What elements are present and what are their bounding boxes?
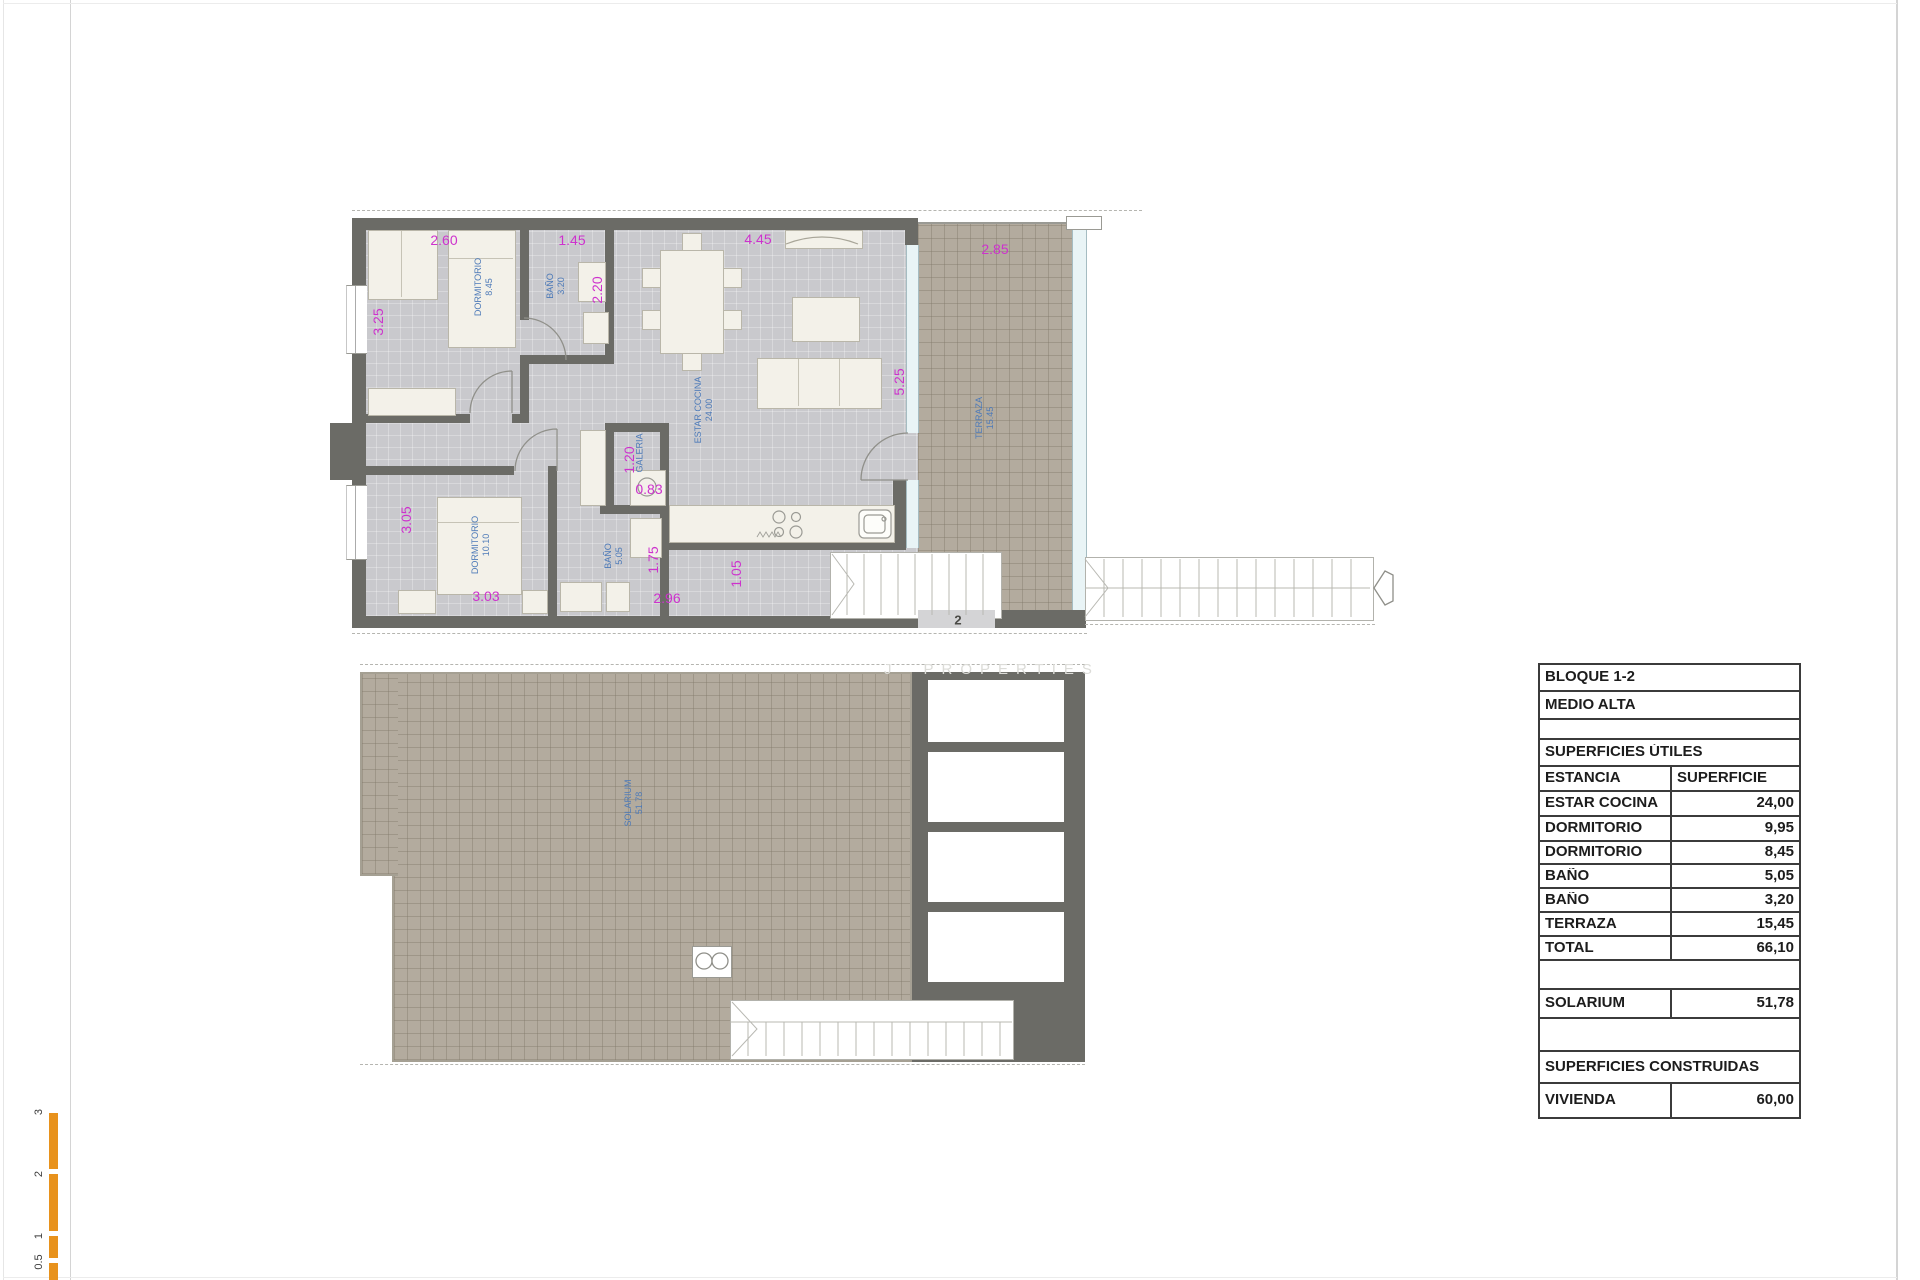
chair	[723, 310, 742, 330]
nightstand	[398, 590, 436, 614]
table-cell: DORMITORIO	[1540, 820, 1670, 837]
skylight	[692, 946, 732, 978]
table-row: SUPERFICIES CONSTRUIDAS	[1540, 1052, 1799, 1084]
scale-label: 0.5	[33, 1254, 45, 1269]
table-cell: 51,78	[1670, 990, 1799, 1017]
tv-cabinet	[785, 230, 863, 249]
table-cell: 9,95	[1670, 817, 1799, 840]
table-cell: 66,10	[1670, 937, 1799, 959]
toilet	[606, 582, 630, 612]
room-area: 5.05	[614, 547, 624, 565]
scale-bar-segment	[49, 1236, 58, 1258]
room-label: GALERIA	[635, 433, 646, 472]
table-row: SOLARIUM51,78	[1540, 990, 1799, 1019]
room-area: 3.20	[556, 277, 566, 295]
table-cell: BAÑO	[1540, 892, 1670, 909]
solarium-floor-extension	[360, 672, 398, 876]
window	[346, 485, 367, 560]
table-cell: ESTAR COCINA	[1540, 795, 1670, 812]
lightwell	[928, 752, 1064, 822]
toilet	[583, 312, 609, 344]
room-name: GALERIA	[635, 433, 645, 472]
table-cell: 15,45	[1670, 913, 1799, 935]
scale-label: 3	[33, 1109, 45, 1115]
terrace-pillar	[1066, 216, 1102, 230]
table-cell: SOLARIUM	[1540, 995, 1670, 1012]
scale-bar-segment	[49, 1174, 58, 1231]
hall-closet	[580, 430, 606, 506]
table-cell: BLOQUE 1-2	[1540, 669, 1799, 686]
page-border-top	[3, 3, 1897, 4]
table-row	[1540, 961, 1799, 990]
room-area: 10.10	[481, 534, 491, 557]
table-cell: TERRAZA	[1540, 916, 1670, 933]
table-row: BAÑO5,05	[1540, 865, 1799, 889]
wall	[520, 355, 614, 364]
lightwell	[928, 680, 1064, 742]
room-name: TERRAZA	[974, 397, 984, 439]
table-cell: 5,05	[1670, 865, 1799, 887]
table-cell: DORMITORIO	[1540, 844, 1670, 861]
room-name: BAÑO	[545, 273, 555, 299]
page-border-inner-left	[70, 0, 71, 1280]
dining-table	[660, 250, 724, 354]
table-cell: 24,00	[1670, 792, 1799, 815]
wall	[605, 423, 614, 514]
wall	[352, 218, 918, 230]
room-area: 24.00	[704, 399, 714, 422]
dimension-label: 3.05	[398, 506, 414, 533]
table-cell: TOTAL	[1540, 940, 1670, 957]
plan-bottom-dashes	[352, 633, 1087, 634]
room-area: 8.45	[484, 278, 494, 296]
dimension-label: 1.45	[558, 232, 585, 248]
dresser	[368, 388, 456, 416]
dimension-label: 1.05	[728, 560, 744, 587]
page-border-left	[3, 0, 4, 1280]
table-row: TERRAZA15,45	[1540, 913, 1799, 937]
table-cell: SUPERFICIES ÚTILES	[1540, 744, 1799, 761]
kitchen-counter	[669, 505, 895, 543]
dimension-label: 4.45	[744, 231, 771, 247]
wall	[352, 218, 366, 628]
table-header-row: ESTANCIASUPERFICIE	[1540, 767, 1799, 792]
scale-label: 2	[33, 1171, 45, 1177]
chair	[682, 353, 702, 371]
page-border-right	[1896, 0, 1898, 1280]
sofa-cushion-line	[839, 359, 840, 406]
chair	[642, 268, 661, 288]
chair	[642, 310, 661, 330]
sofa-cushion-line	[798, 359, 799, 406]
wall	[340, 466, 514, 475]
scale-label: 1	[33, 1233, 45, 1239]
roof-overhang-dashes	[352, 210, 1142, 211]
table-row: BAÑO3,20	[1540, 889, 1799, 913]
plan-sheet: { "watermark": {"prefix": "J", "text": "…	[0, 0, 1920, 1280]
chair	[682, 233, 702, 251]
window	[346, 285, 367, 354]
dimension-label: 1.75	[645, 546, 661, 573]
dimension-label: 0.83	[635, 481, 662, 497]
entry-number: 2	[954, 613, 961, 628]
table-row: DORMITORIO9,95	[1540, 817, 1799, 842]
room-name: SOLARIUM	[623, 779, 633, 826]
scale-bar-segment	[49, 1263, 58, 1280]
room-label: SOLARIUM51.78	[623, 779, 645, 826]
table-cell: ESTANCIA	[1540, 770, 1670, 787]
room-name: BAÑO	[603, 543, 613, 569]
wardrobe	[368, 230, 438, 300]
lightwell	[928, 832, 1064, 902]
wall	[512, 414, 529, 423]
table-cell: BAÑO	[1540, 868, 1670, 885]
solarium-bottom-dashes	[360, 1064, 1085, 1065]
bathroom-sink	[560, 582, 602, 612]
dimension-label: 2.85	[981, 241, 1008, 257]
wall	[520, 355, 529, 423]
room-name: DORMITORIO	[473, 258, 483, 316]
room-name: DORMITORIO	[470, 516, 480, 574]
dimension-label: 5.25	[891, 368, 907, 395]
watermark: JPROPERTIES	[884, 661, 1100, 678]
coffee-table	[792, 297, 860, 342]
wall	[905, 218, 918, 245]
table-row: BLOQUE 1-2	[1540, 665, 1799, 692]
table-row	[1540, 1019, 1799, 1052]
glass-wall	[906, 480, 919, 548]
table-row: VIVIENDA60,00	[1540, 1084, 1799, 1117]
table-row: TOTAL66,10	[1540, 937, 1799, 961]
table-row: MEDIO ALTA	[1540, 692, 1799, 720]
glass-wall	[906, 245, 919, 433]
table-row: DORMITORIO8,45	[1540, 842, 1799, 865]
watermark-prefix: J	[884, 661, 900, 678]
page-border-bottom	[3, 1277, 1897, 1278]
terrace-bottom-wall	[995, 610, 1086, 628]
chair	[723, 268, 742, 288]
wall	[600, 505, 669, 514]
watermark-text: PROPERTIES	[924, 661, 1100, 678]
table-row: ESTAR COCINA24,00	[1540, 792, 1799, 817]
room-label: ESTAR COCINA24.00	[693, 377, 715, 444]
room-name: ESTAR COCINA	[693, 377, 703, 444]
table-cell: SUPERFICIES CONSTRUIDAS	[1540, 1059, 1799, 1076]
wall	[548, 466, 557, 616]
room-label: DORMITORIO10.10	[470, 516, 492, 574]
room-area: 51.78	[634, 792, 644, 815]
direction-arrow-icon	[1374, 571, 1393, 605]
sofa	[757, 358, 882, 409]
room-label: TERRAZA15.45	[974, 397, 996, 439]
dimension-label: 3.25	[370, 308, 386, 335]
wall	[520, 218, 529, 320]
room-area: 15.45	[985, 407, 995, 430]
dimension-label: 2.60	[430, 232, 457, 248]
table-cell: SUPERFICIE	[1670, 767, 1799, 790]
nightstand	[522, 590, 548, 614]
dimension-label: 3.03	[472, 588, 499, 604]
dimension-label: 2.20	[589, 276, 605, 303]
room-label: BAÑO3.20	[545, 273, 567, 299]
solarium-stair	[730, 1000, 1014, 1060]
table-cell: MEDIO ALTA	[1540, 697, 1799, 714]
table-cell: 8,45	[1670, 842, 1799, 863]
room-label: DORMITORIO8.45	[473, 258, 495, 316]
table-row: SUPERFICIES ÚTILES	[1540, 740, 1799, 767]
walkway-dashes	[1085, 624, 1375, 625]
dimension-label: 2.96	[653, 590, 680, 606]
table-cell: VIVIENDA	[1540, 1092, 1670, 1109]
scale-bar-segment	[49, 1113, 58, 1169]
table-cell: 60,00	[1670, 1084, 1799, 1117]
exterior-walkway-stair	[1085, 557, 1374, 621]
wardrobe-divider	[401, 231, 402, 297]
lightwell	[928, 912, 1064, 982]
room-label: BAÑO5.05	[603, 543, 625, 569]
table-cell: 3,20	[1670, 889, 1799, 911]
table-row	[1540, 720, 1799, 740]
terrace-stair	[830, 552, 1002, 619]
surfaces-table: BLOQUE 1-2 MEDIO ALTA SUPERFICIES ÚTILES…	[1538, 663, 1801, 1119]
terrace-balustrade	[1072, 222, 1087, 610]
